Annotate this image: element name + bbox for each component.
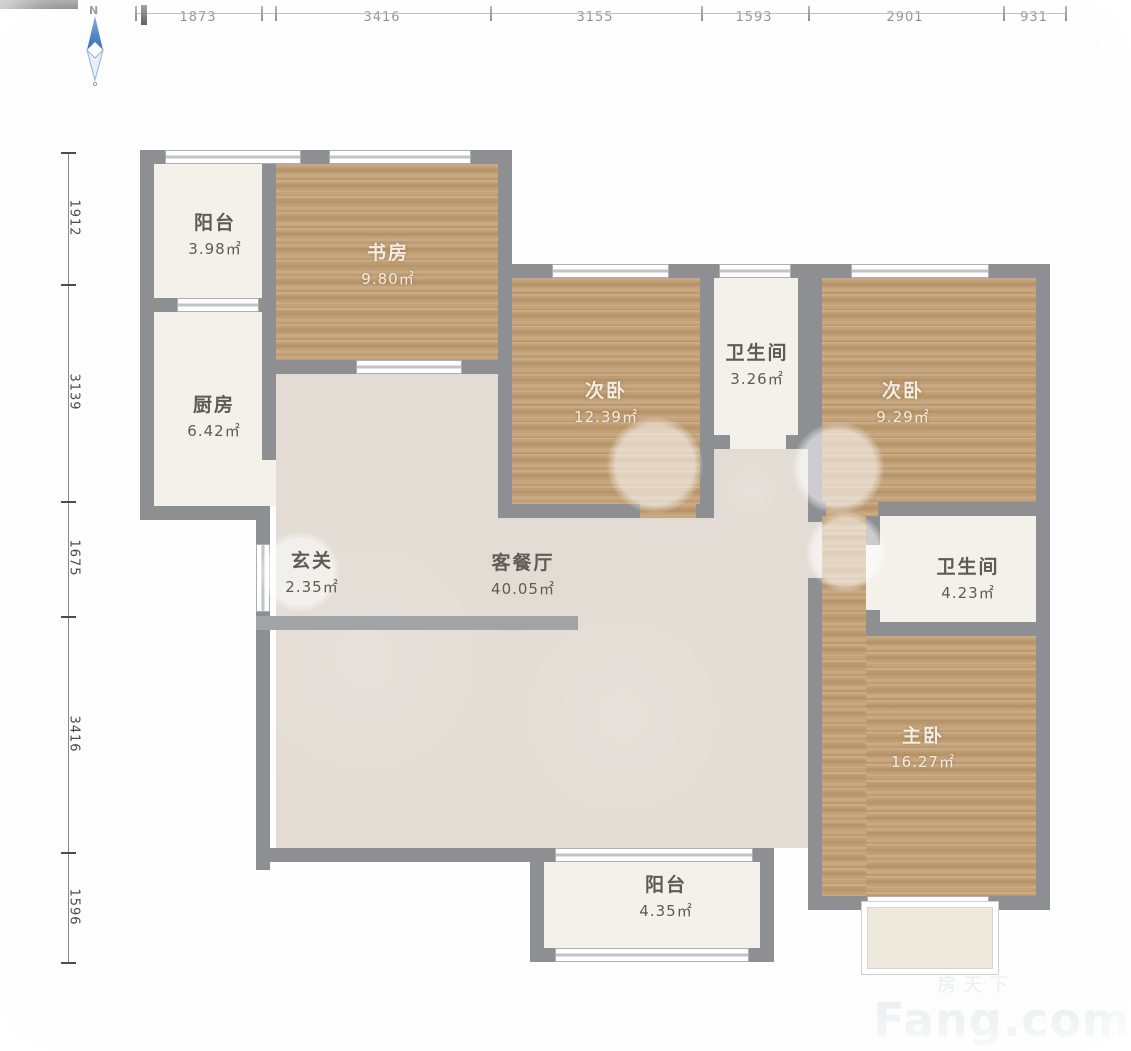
room-area: 4.35㎡ xyxy=(639,904,692,919)
dim-top-1593: 1593 xyxy=(735,10,772,25)
room-label-study: 书房 9.80㎡ xyxy=(361,244,414,287)
room-name: 厨房 xyxy=(187,396,240,415)
door-opening-bath-2 xyxy=(866,545,880,610)
balcony-door xyxy=(556,849,752,861)
room-area: 3.26㎡ xyxy=(725,372,788,387)
room-name: 次卧 xyxy=(574,382,638,401)
room-label-balcony-top: 阳台 3.98㎡ xyxy=(188,214,241,257)
floor-plan: 阳台 3.98㎡ 书房 9.80㎡ 厨房 6.42㎡ 次卧 12.39㎡ 卫生间… xyxy=(0,0,1131,1051)
wall xyxy=(140,506,270,520)
dim-tick xyxy=(1003,6,1005,21)
dim-top-2901: 2901 xyxy=(886,10,923,25)
wall xyxy=(140,150,154,520)
door-opening-bedroom-mid xyxy=(640,504,696,518)
dim-tick xyxy=(261,6,263,21)
dim-tick xyxy=(808,6,810,21)
dim-tick xyxy=(490,6,492,21)
watermark-logo: Fang.com xyxy=(873,993,1131,1047)
dim-tick xyxy=(275,6,277,21)
room-area: 16.27㎡ xyxy=(891,755,955,770)
door-study xyxy=(357,361,461,373)
dim-top-3416: 3416 xyxy=(363,10,400,25)
watermark: 房天下 Fang.com xyxy=(873,970,1131,1047)
room-name: 卫生间 xyxy=(936,558,999,577)
room-area: 2.35㎡ xyxy=(285,580,338,595)
wall xyxy=(760,848,774,962)
dim-left-3416: 3416 xyxy=(67,715,82,752)
wall xyxy=(808,264,822,910)
watermark-cn: 房天下 xyxy=(937,970,1131,997)
dim-left-1912: 1912 xyxy=(67,199,82,236)
window-bedroom-mid xyxy=(553,265,668,277)
window-balcony-top xyxy=(166,151,300,163)
floor-corridor xyxy=(714,449,808,518)
wall-entry-beam xyxy=(256,616,578,630)
room-label-bath-2: 卫生间 4.23㎡ xyxy=(936,558,999,601)
room-label-bedroom-mid: 次卧 12.39㎡ xyxy=(574,382,638,425)
room-area: 4.23㎡ xyxy=(936,586,999,601)
dim-tick xyxy=(61,852,76,854)
room-name: 客餐厅 xyxy=(491,554,555,573)
window-balcony-bottom xyxy=(556,949,748,961)
room-label-balcony-bottom: 阳台 4.35㎡ xyxy=(639,876,692,919)
wall xyxy=(866,622,1050,636)
dim-tick xyxy=(1065,6,1067,21)
wall xyxy=(498,150,512,518)
dim-tick xyxy=(141,5,147,25)
wall xyxy=(1036,264,1050,910)
window-bedroom-right xyxy=(852,265,988,277)
dim-left-3139: 3139 xyxy=(67,373,82,410)
room-label-kitchen: 厨房 6.42㎡ xyxy=(187,396,240,439)
dim-left-1675: 1675 xyxy=(67,539,82,576)
room-name: 次卧 xyxy=(876,382,929,401)
dim-top-3155: 3155 xyxy=(576,10,613,25)
room-name: 阳台 xyxy=(188,214,241,233)
dim-tick xyxy=(61,284,76,286)
room-area: 6.42㎡ xyxy=(187,424,240,439)
scan-artifact-bar xyxy=(0,0,78,9)
room-name: 阳台 xyxy=(639,876,692,895)
room-area: 12.39㎡ xyxy=(574,410,638,425)
room-label-master-bedroom: 主卧 16.27㎡ xyxy=(891,727,955,770)
floor-living-left xyxy=(276,374,498,848)
room-label-bedroom-right: 次卧 9.29㎡ xyxy=(876,382,929,425)
north-arrow-icon xyxy=(80,14,110,86)
dim-tick xyxy=(61,501,76,503)
room-name: 卫生间 xyxy=(725,344,788,363)
room-area: 9.80㎡ xyxy=(361,272,414,287)
dim-top-931: 931 xyxy=(1020,10,1048,25)
bay-window xyxy=(862,902,998,974)
door-opening-bath-1 xyxy=(730,435,786,449)
room-label-living-dining: 客餐厅 40.05㎡ xyxy=(491,554,555,597)
room-name: 主卧 xyxy=(891,727,955,746)
window-balcony-kitchen xyxy=(178,299,258,311)
door-opening-kitchen xyxy=(262,460,276,506)
window-bath-1 xyxy=(720,265,790,277)
dim-tick xyxy=(61,616,76,618)
dim-tick xyxy=(135,6,137,21)
room-label-bath-1: 卫生间 3.26㎡ xyxy=(725,344,788,387)
room-label-entry: 玄关 2.35㎡ xyxy=(285,552,338,595)
room-name: 玄关 xyxy=(285,552,338,571)
wall xyxy=(530,848,544,962)
room-name: 书房 xyxy=(361,244,414,263)
floor-master-strip xyxy=(822,516,866,896)
dim-tick xyxy=(701,6,703,21)
window-study xyxy=(330,151,470,163)
dim-tick xyxy=(61,152,76,154)
room-area: 40.05㎡ xyxy=(491,582,555,597)
dim-left-1596: 1596 xyxy=(67,888,82,925)
dim-tick xyxy=(61,962,76,964)
dim-top-1873: 1873 xyxy=(179,10,216,25)
room-area: 9.29㎡ xyxy=(876,410,929,425)
window-entry-left xyxy=(257,545,269,611)
door-opening-master xyxy=(808,522,822,578)
wall xyxy=(700,264,714,518)
room-area: 3.98㎡ xyxy=(188,242,241,257)
door-opening-bedroom-right xyxy=(826,502,878,516)
